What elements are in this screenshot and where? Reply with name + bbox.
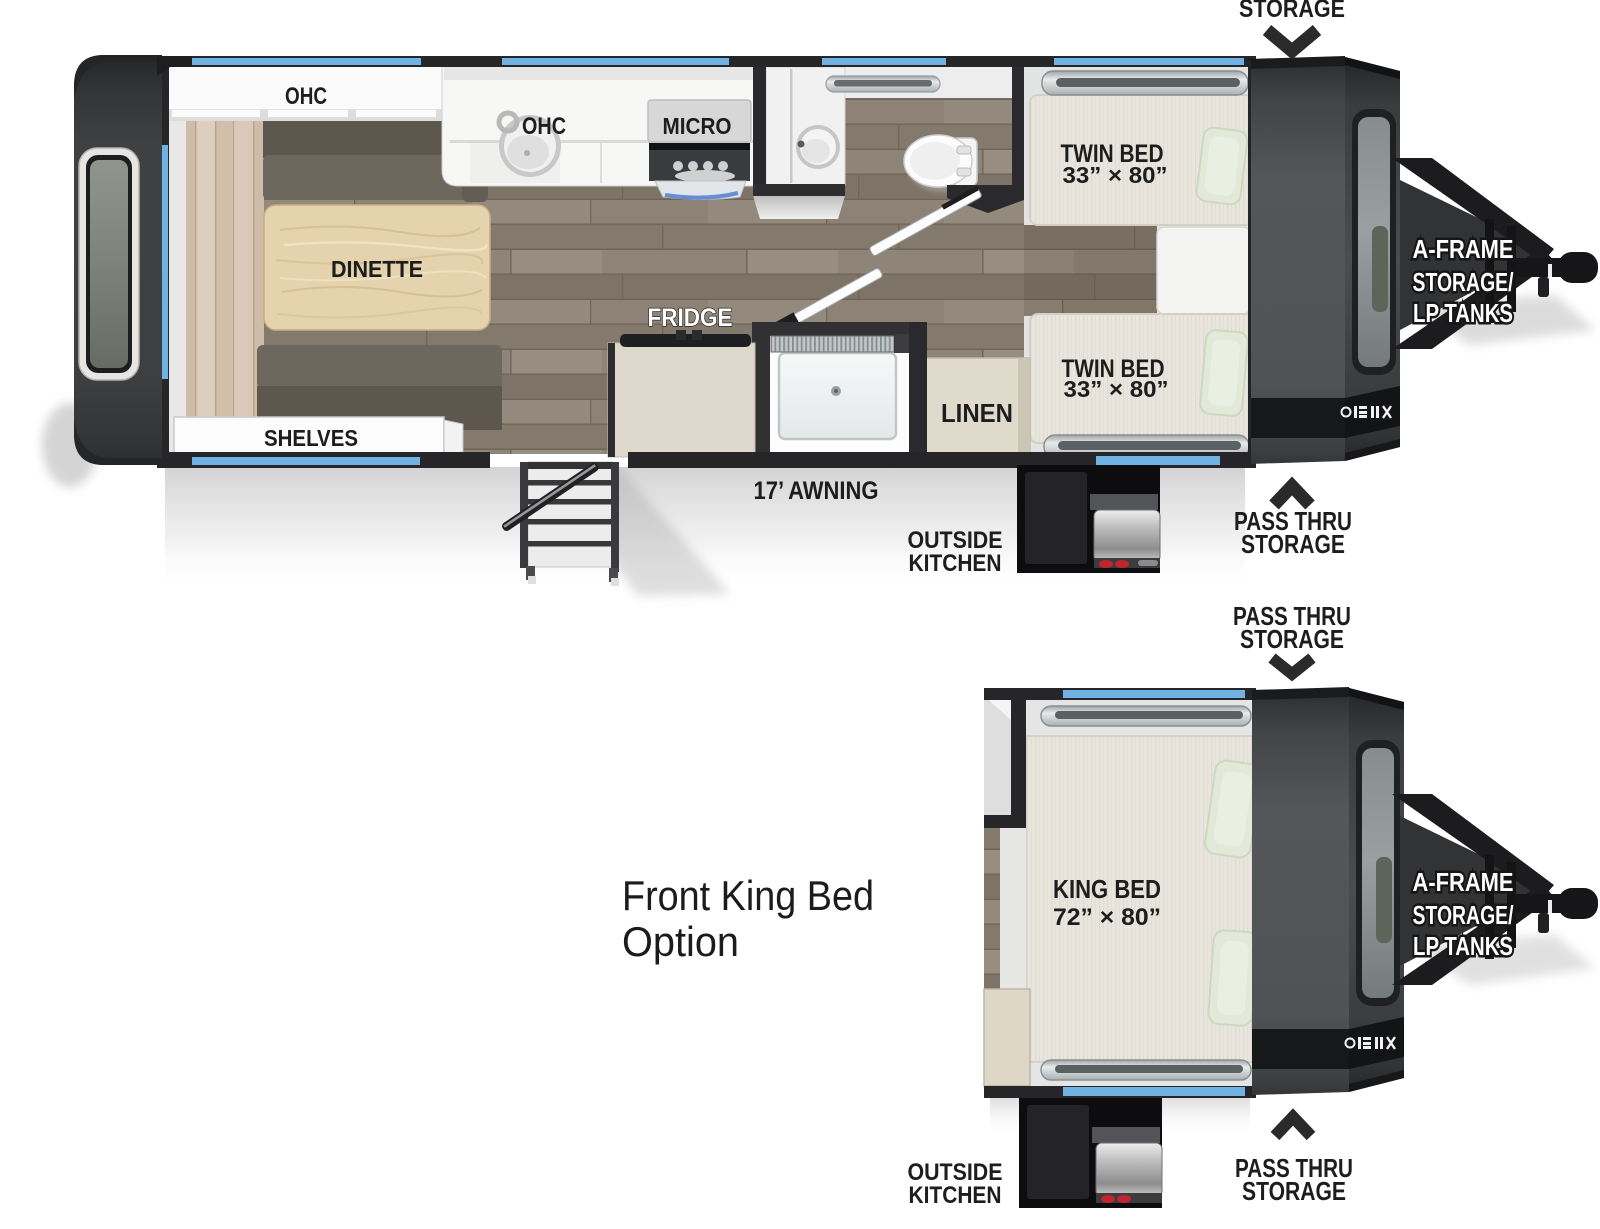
svg-text:STORAGE: STORAGE [1242, 1176, 1346, 1206]
svg-text:KING BED: KING BED [1053, 874, 1161, 904]
svg-text:A-FRAME: A-FRAME [1413, 234, 1514, 264]
svg-text:Option: Option [622, 918, 739, 965]
svg-text:72” × 80”: 72” × 80” [1053, 904, 1161, 931]
svg-text:KITCHEN: KITCHEN [909, 550, 1002, 577]
svg-text:STORAGE: STORAGE [1240, 624, 1344, 654]
svg-text:LINEN: LINEN [941, 398, 1013, 428]
svg-text:LP TANKS: LP TANKS [1413, 931, 1513, 961]
svg-text:KITCHEN: KITCHEN [909, 1182, 1002, 1209]
svg-text:Front King Bed: Front King Bed [622, 872, 874, 919]
svg-text:STORAGE: STORAGE [1241, 529, 1345, 559]
svg-text:33” × 80”: 33” × 80” [1063, 162, 1168, 188]
svg-text:LP TANKS: LP TANKS [1413, 298, 1513, 328]
svg-text:FRIDGE: FRIDGE [648, 304, 733, 332]
svg-text:17’ AWNING: 17’ AWNING [754, 477, 879, 505]
svg-text:STORAGE/: STORAGE/ [1413, 900, 1514, 930]
svg-text:OHC: OHC [285, 83, 327, 110]
svg-text:OHC: OHC [522, 113, 566, 140]
svg-text:STORAGE/: STORAGE/ [1413, 267, 1514, 297]
svg-text:DINETTE: DINETTE [331, 256, 423, 282]
svg-text:33” × 80”: 33” × 80” [1064, 376, 1169, 402]
svg-text:STORAGE: STORAGE [1239, 0, 1345, 23]
svg-text:A-FRAME: A-FRAME [1413, 867, 1514, 897]
svg-text:MICRO: MICRO [663, 113, 732, 139]
svg-text:SHELVES: SHELVES [264, 425, 358, 451]
